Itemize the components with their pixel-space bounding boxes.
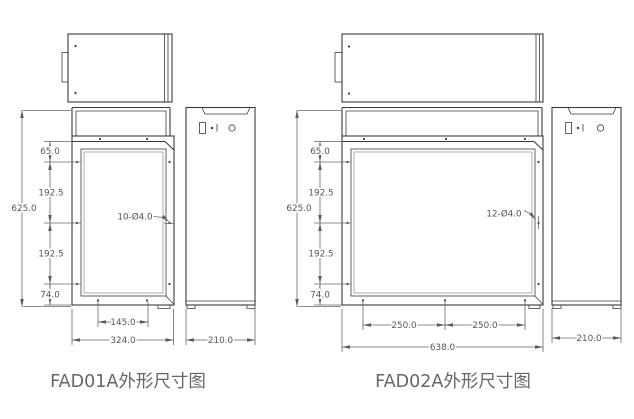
dim-pitch-upper: 192.5 <box>308 189 333 199</box>
dim-bottom-offset: 74.0 <box>40 291 60 301</box>
dim-depth: 210.0 <box>576 334 602 344</box>
port-cutout <box>566 123 572 134</box>
dim-pitch-upper: 192.5 <box>38 189 63 199</box>
dim-pitch-lower: 192.5 <box>308 250 333 260</box>
dim-pitch-lower: 192.5 <box>38 250 63 260</box>
dimension-drawing-canvas: 625.0 65.0 192.5 192.5 74.0 10-Ø4.0 145.… <box>0 0 634 419</box>
port-cutout <box>200 123 206 134</box>
dim-bottom-hole-span-right: 250.0 <box>472 321 498 331</box>
handle-recess <box>202 108 250 115</box>
dim-top-offset: 65.0 <box>310 147 330 157</box>
fad02a-front-view <box>342 108 543 309</box>
dim-overall-width: 324.0 <box>110 336 136 346</box>
round-hole <box>597 125 603 131</box>
hole-callout: 12-Ø4.0 <box>486 209 522 220</box>
dim-bottom-hole-span-left: 250.0 <box>391 321 417 331</box>
fad01a-top-view <box>62 34 172 102</box>
dim-depth: 210.0 <box>208 336 234 346</box>
hole-callout: 10-Ø4.0 <box>117 212 153 223</box>
handle-recess <box>568 108 616 115</box>
round-hole <box>229 125 235 131</box>
fad01a-dimensions: 625.0 65.0 192.5 192.5 74.0 10-Ø4.0 145.… <box>11 110 255 346</box>
rear-bracket <box>335 53 342 83</box>
dim-top-offset: 65.0 <box>40 147 60 157</box>
dim-bottom-hole-span: 145.0 <box>110 318 136 328</box>
fad01a-title: FAD01A外形尺寸图 <box>50 372 206 392</box>
dim-bottom-offset: 74.0 <box>310 291 330 301</box>
fad02a-top-view <box>335 34 543 102</box>
fad01a-side-view <box>186 108 255 309</box>
dim-overall-width: 638.0 <box>430 343 456 353</box>
fad02a-dimensions: 625.0 65.0 192.5 192.5 74.0 12-Ø4.0 250.… <box>286 110 621 353</box>
dim-total-height: 625.0 <box>11 204 37 214</box>
fad02a-title: FAD02A外形尺寸图 <box>375 372 531 392</box>
fad02a-drawing: 625.0 65.0 192.5 192.5 74.0 12-Ø4.0 250.… <box>286 34 621 392</box>
rear-bracket <box>62 53 68 83</box>
fad01a-drawing: 625.0 65.0 192.5 192.5 74.0 10-Ø4.0 145.… <box>11 34 255 392</box>
fad01a-front-view <box>72 108 174 309</box>
dim-total-height: 625.0 <box>286 204 312 214</box>
fad02a-side-view <box>552 108 621 309</box>
